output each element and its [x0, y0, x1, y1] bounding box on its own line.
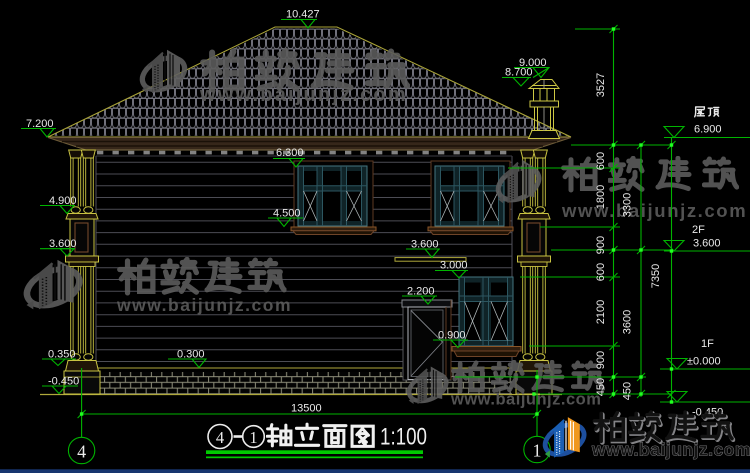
svg-text:3527: 3527	[595, 73, 607, 97]
svg-text:6.300: 6.300	[276, 147, 304, 159]
svg-text:7.200: 7.200	[26, 118, 54, 130]
svg-text:8.700: 8.700	[505, 67, 533, 79]
svg-text:900: 900	[595, 351, 607, 369]
svg-text:450: 450	[595, 378, 607, 396]
svg-text:600: 600	[595, 152, 607, 170]
svg-text:6.900: 6.900	[694, 124, 722, 136]
svg-text:2.200: 2.200	[407, 286, 435, 298]
svg-text:3.600: 3.600	[49, 238, 77, 250]
svg-text:1F: 1F	[701, 338, 714, 350]
svg-text:3.600: 3.600	[693, 238, 721, 250]
svg-text:4.900: 4.900	[49, 195, 77, 207]
svg-text:0.900: 0.900	[438, 330, 466, 342]
svg-text:-0.450: -0.450	[48, 376, 79, 388]
svg-text:4: 4	[216, 428, 224, 447]
svg-text:±0.000: ±0.000	[687, 356, 721, 368]
svg-text:3.600: 3.600	[411, 239, 439, 251]
svg-text:www.baijunjz.com: www.baijunjz.com	[561, 200, 747, 221]
svg-text:450: 450	[622, 382, 634, 400]
svg-text:13500: 13500	[291, 403, 322, 415]
svg-text:3600: 3600	[622, 310, 634, 334]
svg-text:0.300: 0.300	[177, 349, 205, 361]
svg-text:600: 600	[595, 263, 607, 281]
svg-text:www.baijunjz.com: www.baijunjz.com	[116, 295, 292, 315]
svg-text:4.500: 4.500	[273, 208, 301, 220]
svg-text:1: 1	[249, 428, 257, 447]
svg-text:1800: 1800	[595, 185, 607, 209]
svg-text:7350: 7350	[650, 264, 662, 288]
svg-text:10.427: 10.427	[286, 9, 320, 21]
svg-text:www.baijunjz.com: www.baijunjz.com	[450, 391, 601, 409]
svg-text:2F: 2F	[692, 224, 705, 236]
svg-text:2100: 2100	[595, 300, 607, 324]
svg-text:1:100: 1:100	[380, 424, 427, 451]
svg-text:900: 900	[595, 236, 607, 254]
svg-text:4: 4	[77, 442, 86, 462]
svg-text:www.baijunjz.com: www.baijunjz.com	[591, 440, 750, 460]
svg-text:1: 1	[533, 441, 542, 461]
svg-text:www.baijunjz.com: www.baijunjz.com	[199, 84, 408, 106]
svg-text:0.350: 0.350	[48, 349, 76, 361]
svg-text:3.000: 3.000	[440, 260, 468, 272]
svg-text:3300: 3300	[622, 193, 634, 217]
